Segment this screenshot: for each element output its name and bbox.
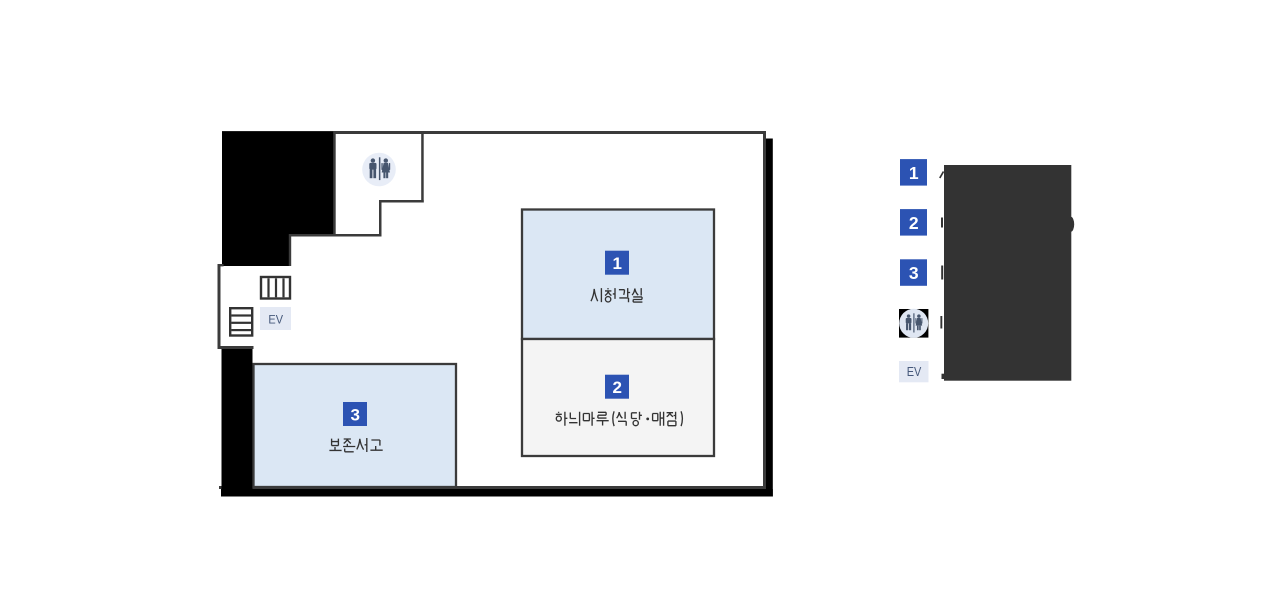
svg-text:1: 1: [909, 163, 919, 183]
svg-text:3: 3: [909, 263, 919, 283]
svg-text:2: 2: [909, 213, 919, 233]
svg-text:1: 1: [612, 254, 621, 273]
svg-text:3: 3: [350, 406, 359, 425]
svg-text:EV: EV: [907, 364, 922, 379]
svg-text:EV: EV: [268, 312, 283, 326]
svg-text:2: 2: [612, 378, 621, 397]
